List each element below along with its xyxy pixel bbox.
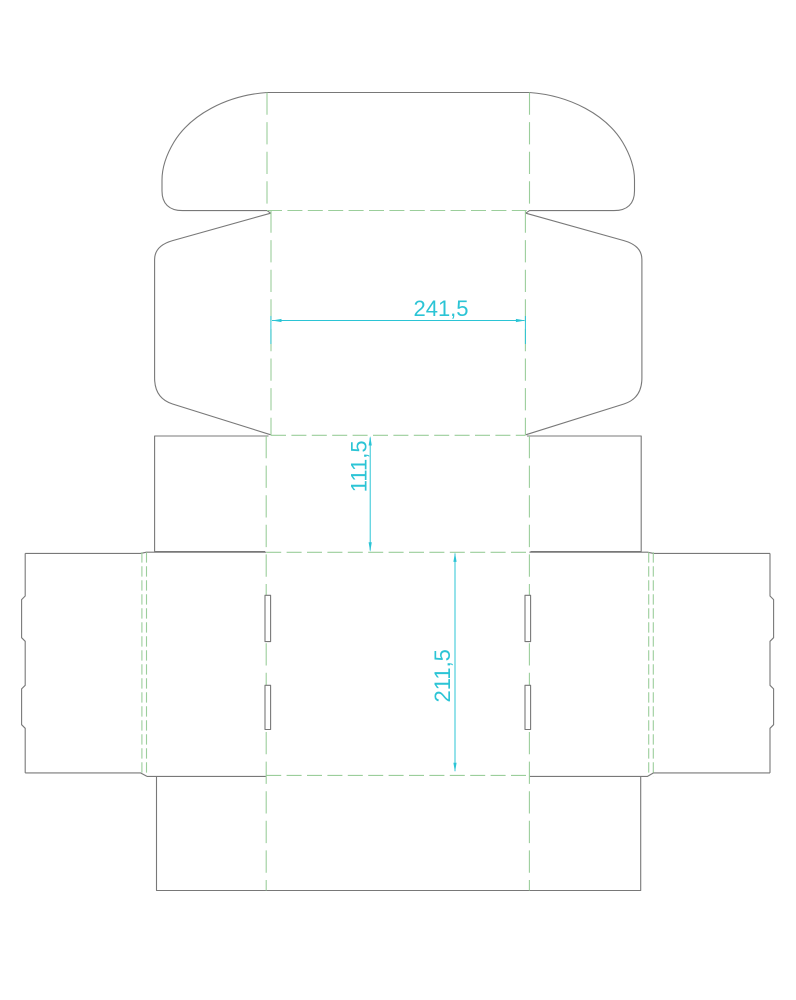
svg-text:111,5: 111,5 <box>346 440 371 492</box>
svg-text:211,5: 211,5 <box>430 649 455 702</box>
svg-text:241,5: 241,5 <box>413 296 468 321</box>
